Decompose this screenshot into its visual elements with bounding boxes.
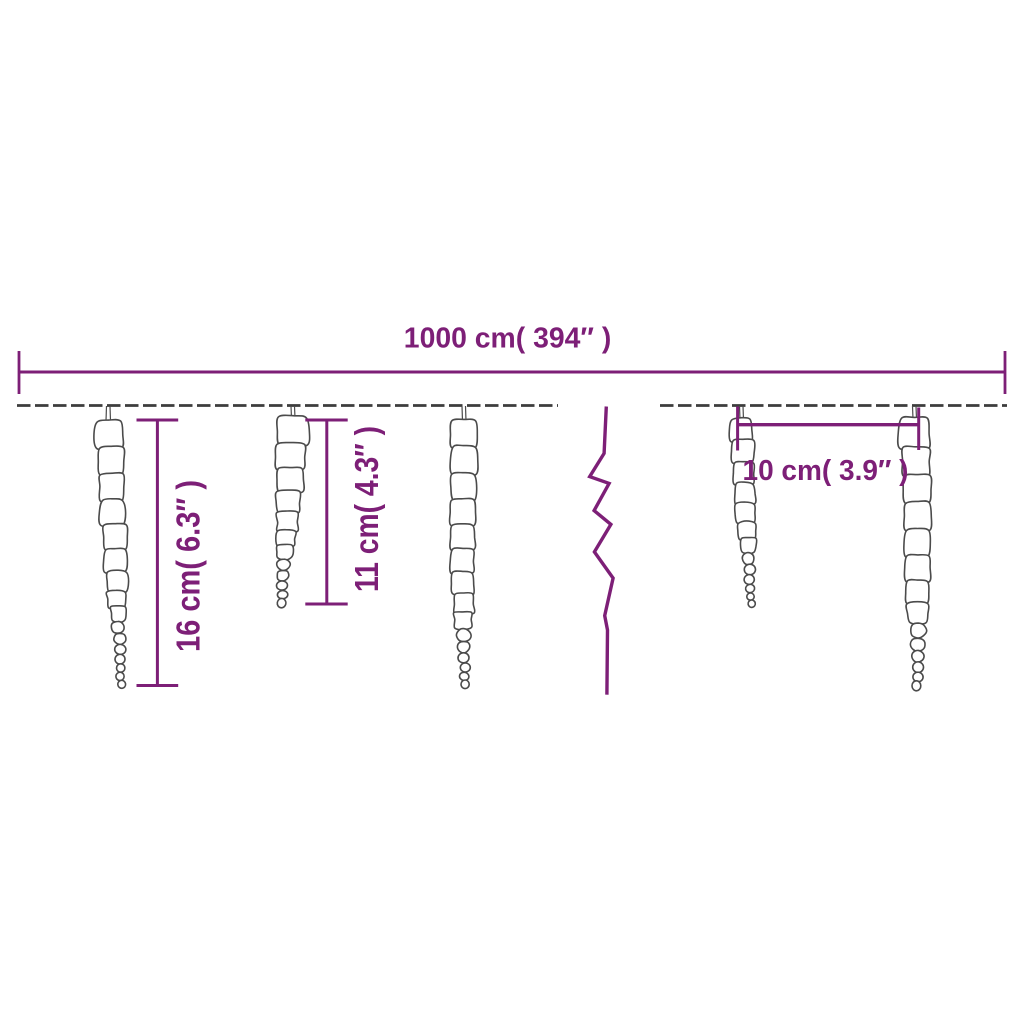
svg-text:11 cm( 4.3″ ): 11 cm( 4.3″ ) (348, 426, 385, 592)
svg-text:16 cm( 6.3″ ): 16 cm( 6.3″ ) (170, 480, 207, 652)
svg-text:10 cm( 3.9″ ): 10 cm( 3.9″ ) (743, 455, 909, 487)
svg-text:1000 cm( 394″ ): 1000 cm( 394″ ) (404, 323, 612, 355)
